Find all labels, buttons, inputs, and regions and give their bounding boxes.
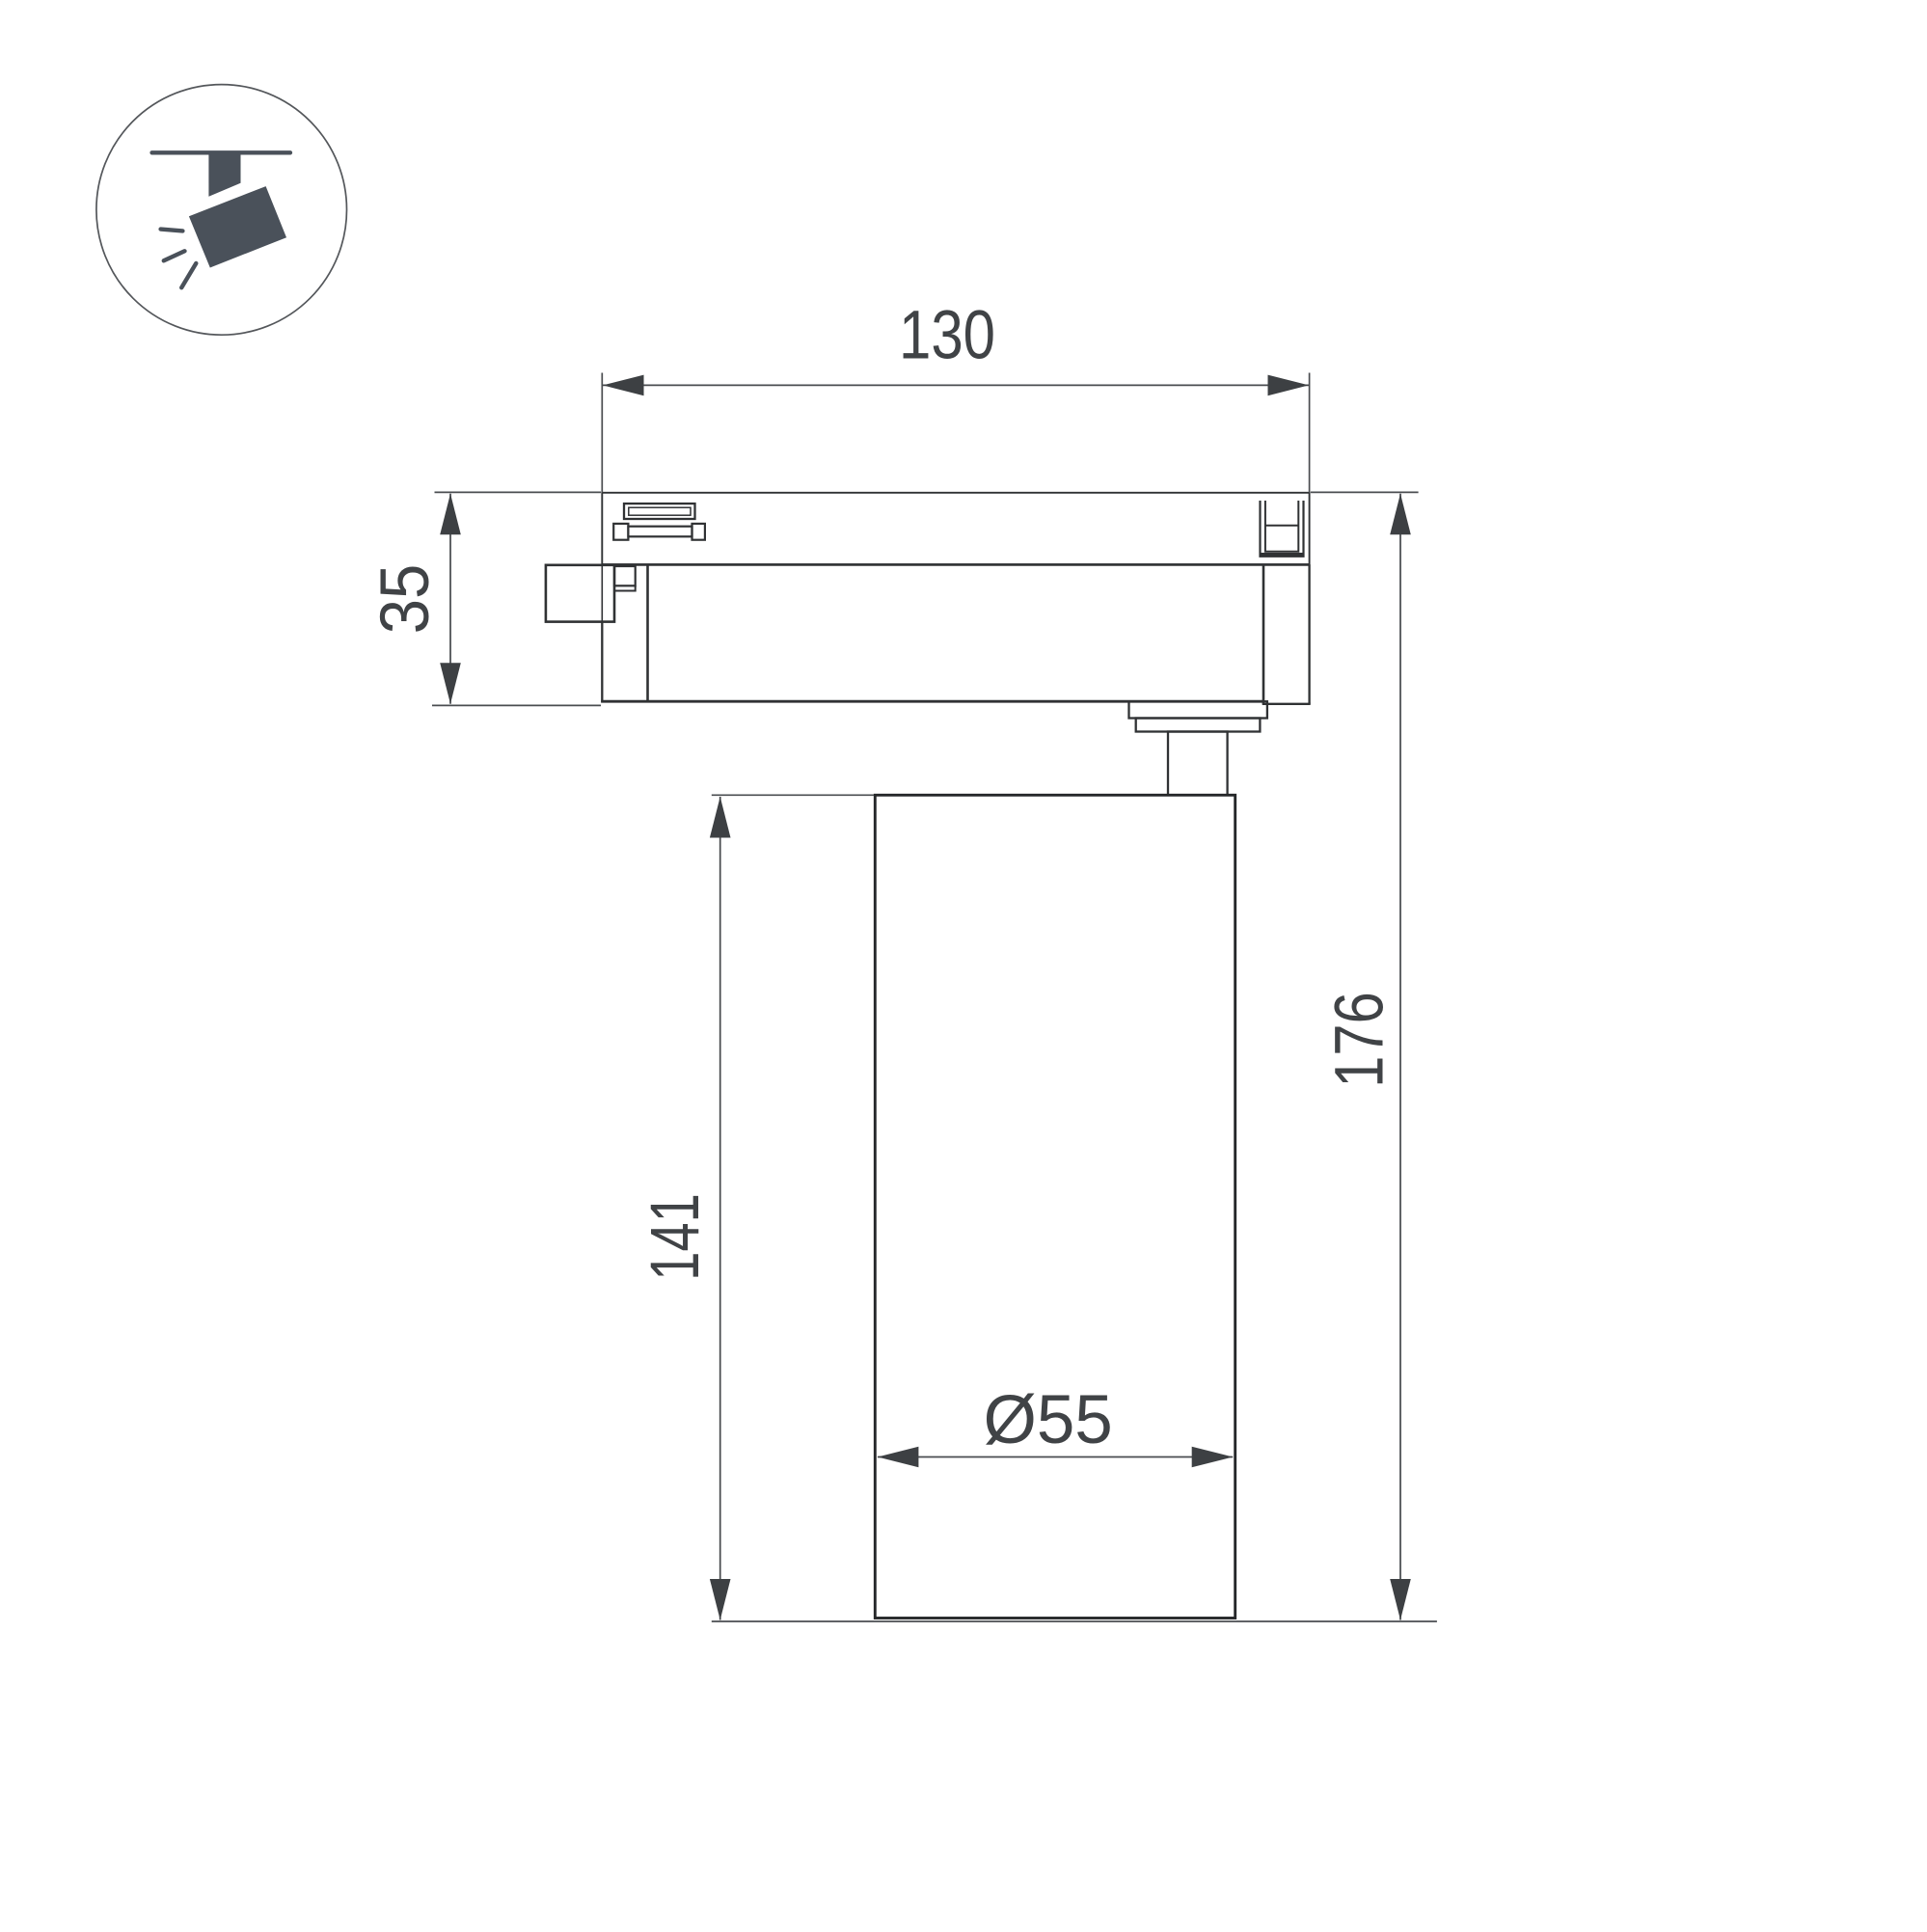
svg-text:Ø55: Ø55 bbox=[984, 1382, 1113, 1458]
svg-text:35: 35 bbox=[367, 564, 444, 635]
svg-text:130: 130 bbox=[899, 297, 995, 373]
svg-text:176: 176 bbox=[1322, 992, 1398, 1088]
svg-text:141: 141 bbox=[638, 1193, 714, 1280]
